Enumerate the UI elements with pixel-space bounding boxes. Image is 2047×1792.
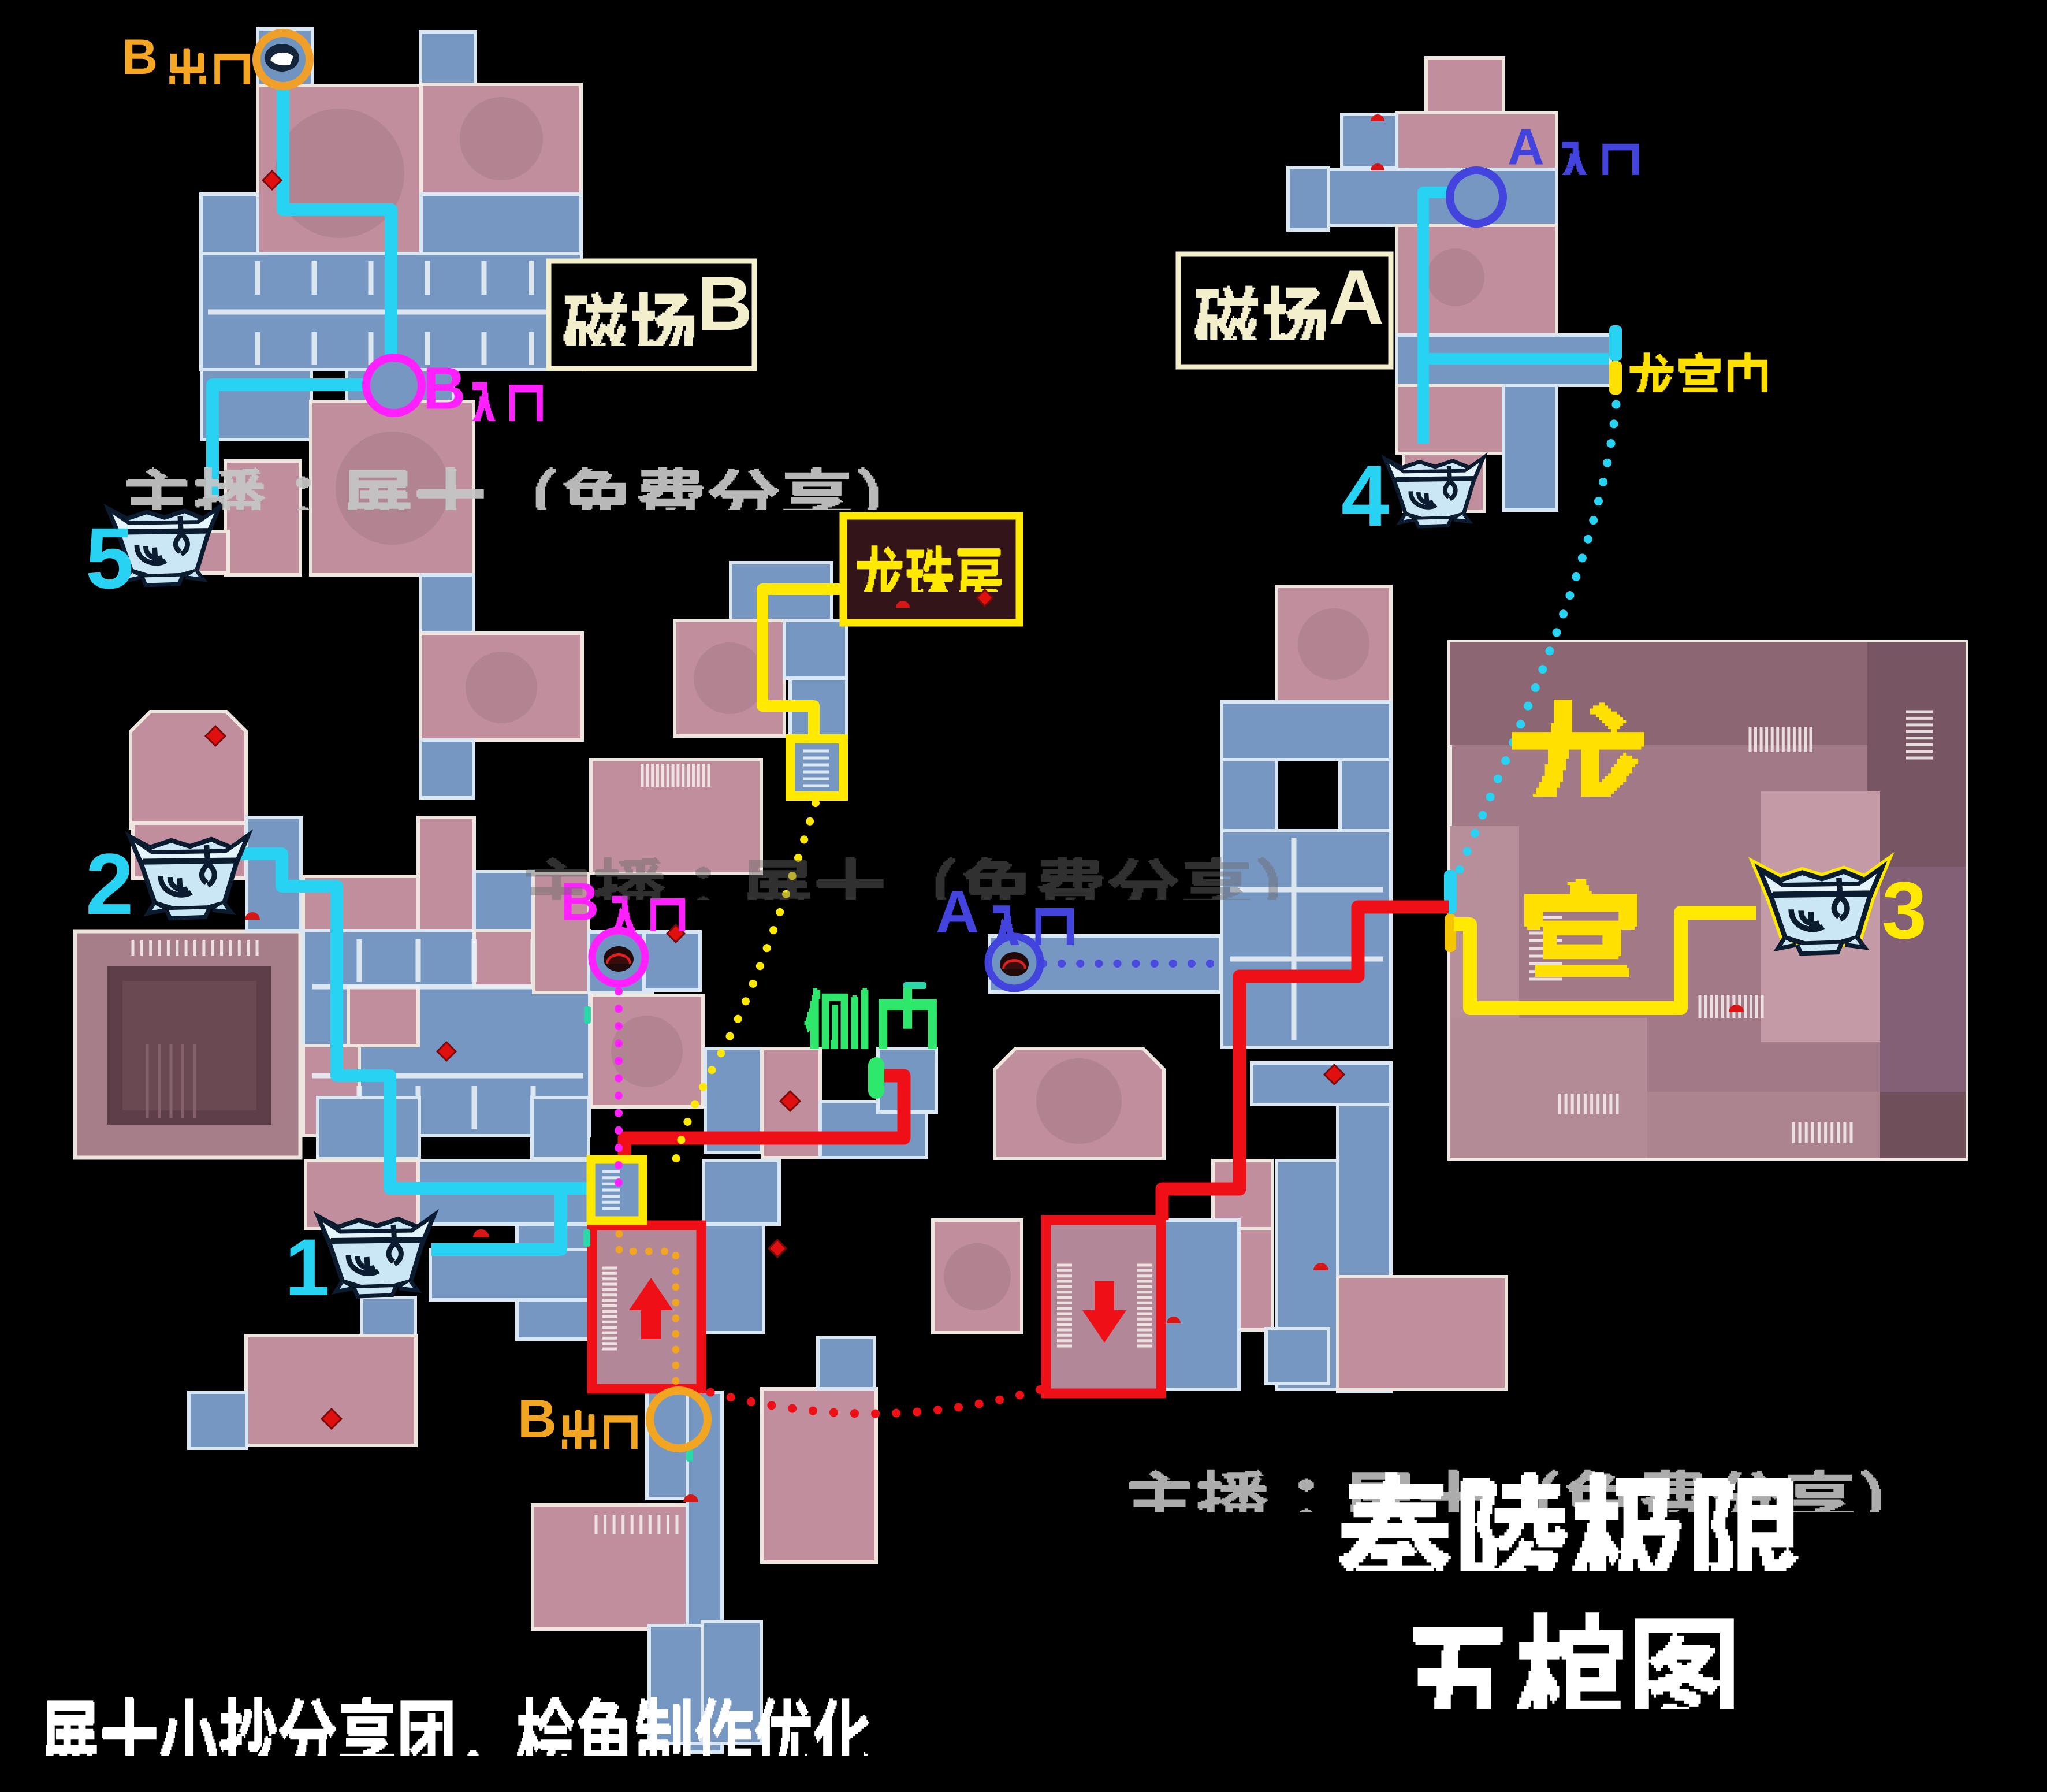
svg-text:B: B: [560, 871, 599, 931]
svg-text:A: A: [1508, 118, 1544, 175]
svg-text:5: 5: [85, 510, 133, 607]
svg-text:2: 2: [85, 835, 133, 932]
svg-text:A: A: [1328, 255, 1384, 340]
svg-text:B: B: [518, 1388, 557, 1449]
svg-text:B: B: [697, 261, 753, 347]
svg-text:4: 4: [1341, 447, 1389, 544]
svg-text:1: 1: [285, 1222, 330, 1313]
svg-text:B: B: [423, 355, 466, 421]
svg-text:B: B: [122, 29, 158, 85]
svg-text:3: 3: [1882, 865, 1927, 956]
